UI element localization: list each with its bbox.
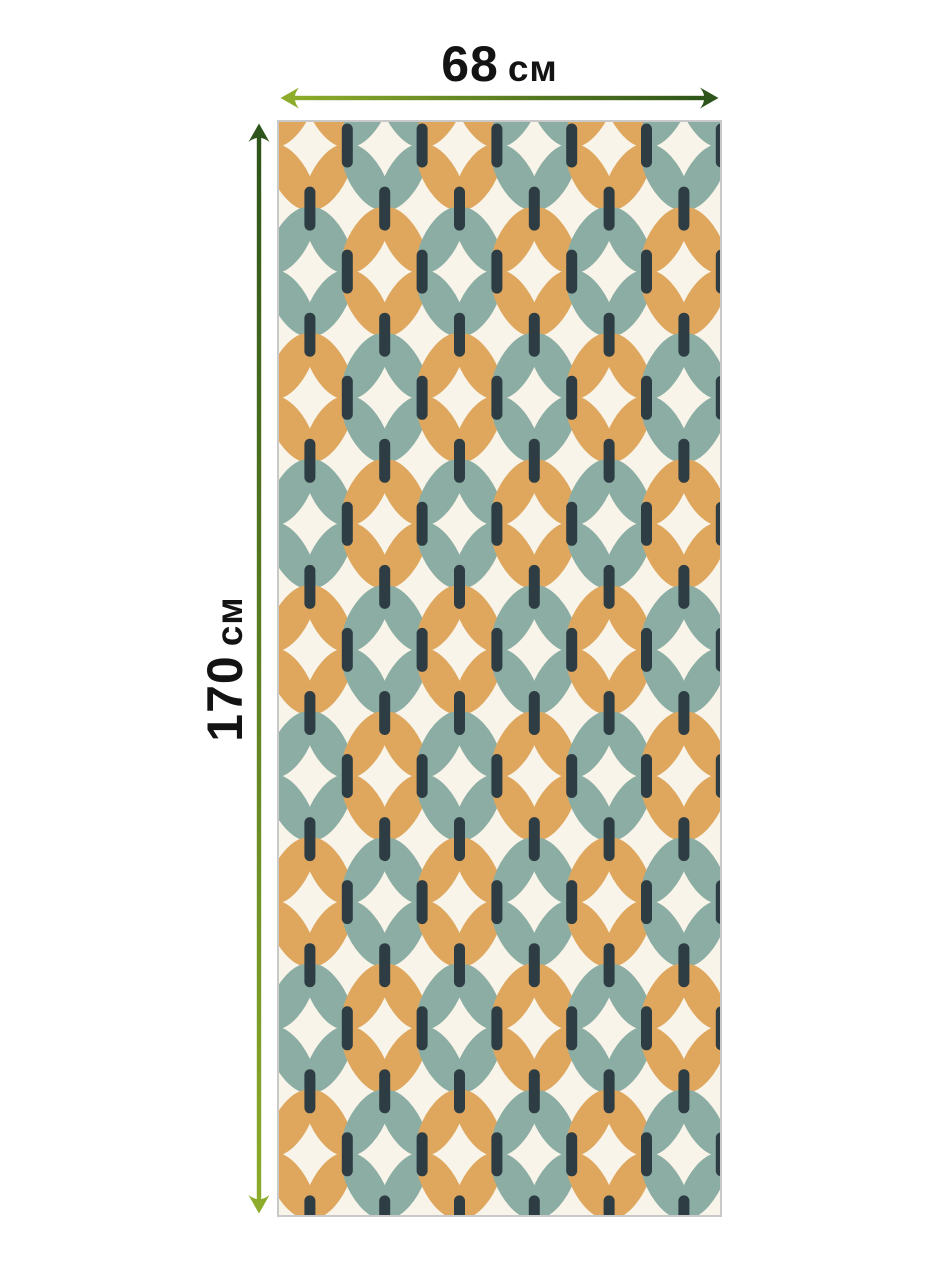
chain-link-capsule — [454, 313, 465, 357]
chain-link-capsule — [604, 1195, 615, 1215]
chain-link-capsule — [454, 439, 465, 483]
chain-link-capsule — [304, 565, 315, 609]
chain-link-capsule — [417, 880, 428, 924]
chain-link-capsule — [678, 1069, 689, 1113]
chain-link-capsule — [379, 439, 390, 483]
chain-link-capsule — [678, 313, 689, 357]
chain-link-capsule — [417, 1006, 428, 1050]
width-arrow-shaft — [291, 96, 708, 100]
height-unit: см — [209, 596, 250, 646]
chain-link-capsule — [641, 250, 652, 294]
chain-link-capsule — [417, 1132, 428, 1176]
chain-link-capsule — [379, 313, 390, 357]
chain-link-capsule — [678, 691, 689, 735]
chain-link-capsule — [454, 1195, 465, 1215]
chain-link-capsule — [454, 187, 465, 231]
chain-link-capsule — [342, 250, 353, 294]
chain-link-capsule — [491, 1132, 502, 1176]
chain-link-capsule — [529, 1069, 540, 1113]
chain-link-capsule — [491, 124, 502, 168]
chain-link-capsule — [342, 1006, 353, 1050]
chain-link-capsule — [604, 817, 615, 861]
chain-link-capsule — [566, 376, 577, 420]
chain-link-capsule — [491, 628, 502, 672]
chain-link-capsule — [342, 124, 353, 168]
chain-link-capsule — [342, 502, 353, 546]
chain-link-capsule — [304, 691, 315, 735]
chain-link-capsule — [641, 754, 652, 798]
chain-link-capsule — [342, 1132, 353, 1176]
chain-link-capsule — [716, 124, 720, 168]
chain-link-capsule — [641, 628, 652, 672]
chain-link-capsule — [566, 250, 577, 294]
chain-link-capsule — [604, 1069, 615, 1113]
width-unit: см — [508, 48, 558, 89]
chain-link-capsule — [566, 1132, 577, 1176]
chain-link-capsule — [491, 1006, 502, 1050]
chain-link-capsule — [304, 313, 315, 357]
chain-link-capsule — [304, 1069, 315, 1113]
chain-link-capsule — [604, 943, 615, 987]
chain-link-capsule — [566, 1006, 577, 1050]
chain-link-capsule — [342, 880, 353, 924]
chain-link-capsule — [529, 187, 540, 231]
chain-link-capsule — [379, 943, 390, 987]
chain-link-capsule — [417, 124, 428, 168]
chain-link-capsule — [716, 250, 720, 294]
chain-link-capsule — [342, 376, 353, 420]
chain-link-capsule — [678, 565, 689, 609]
chain-link-capsule — [604, 187, 615, 231]
chain-link-capsule — [304, 187, 315, 231]
chain-link-capsule — [566, 754, 577, 798]
chain-link-capsule — [491, 880, 502, 924]
chain-link-capsule — [529, 817, 540, 861]
chain-link-capsule — [491, 250, 502, 294]
chain-link-capsule — [454, 1069, 465, 1113]
chain-link-capsule — [379, 187, 390, 231]
chain-link-capsule — [566, 502, 577, 546]
chain-link-capsule — [641, 880, 652, 924]
chain-link-capsule — [529, 691, 540, 735]
chain-link-capsule — [678, 817, 689, 861]
chain-link-capsule — [716, 502, 720, 546]
chain-link-capsule — [491, 376, 502, 420]
height-arrow — [245, 120, 273, 1217]
chain-link-capsule — [379, 817, 390, 861]
chain-link-capsule — [454, 565, 465, 609]
chain-link-capsule — [641, 1132, 652, 1176]
chain-link-capsule — [641, 376, 652, 420]
chain-link-capsule — [304, 439, 315, 483]
chain-link-capsule — [417, 754, 428, 798]
chain-link-capsule — [529, 1195, 540, 1215]
chain-link-capsule — [678, 1195, 689, 1215]
chain-link-capsule — [529, 313, 540, 357]
chain-link-capsule — [566, 124, 577, 168]
height-arrow-shaft — [257, 134, 261, 1203]
chain-link-capsule — [342, 628, 353, 672]
chain-link-capsule — [342, 754, 353, 798]
pattern-svg — [279, 122, 720, 1215]
width-arrow — [277, 84, 722, 112]
chain-link-capsule — [641, 502, 652, 546]
chain-link-capsule — [417, 502, 428, 546]
blind-panel — [277, 120, 722, 1217]
chain-link-capsule — [529, 565, 540, 609]
chain-link-capsule — [491, 502, 502, 546]
chain-link-capsule — [417, 376, 428, 420]
chain-link-capsule — [529, 943, 540, 987]
chain-link-capsule — [604, 313, 615, 357]
chain-link-capsule — [604, 439, 615, 483]
chain-link-capsule — [641, 1006, 652, 1050]
product-mockup: 68см 170см — [0, 0, 950, 1266]
chain-link-capsule — [566, 628, 577, 672]
chain-link-capsule — [491, 754, 502, 798]
chain-link-capsule — [304, 1195, 315, 1215]
chain-link-capsule — [716, 1006, 720, 1050]
chain-link-capsule — [678, 439, 689, 483]
chain-link-capsule — [716, 754, 720, 798]
chain-link-capsule — [641, 124, 652, 168]
chain-link-capsule — [417, 250, 428, 294]
chain-link-capsule — [417, 628, 428, 672]
chain-link-capsule — [716, 1132, 720, 1176]
chain-link-capsule — [379, 1195, 390, 1215]
chain-link-capsule — [454, 817, 465, 861]
chain-link-capsule — [454, 691, 465, 735]
chain-link-capsule — [566, 880, 577, 924]
chain-link-capsule — [529, 439, 540, 483]
chain-link-capsule — [716, 628, 720, 672]
chain-link-capsule — [304, 943, 315, 987]
chain-link-capsule — [716, 376, 720, 420]
chain-link-capsule — [678, 943, 689, 987]
chain-link-capsule — [716, 880, 720, 924]
chain-link-capsule — [454, 943, 465, 987]
chain-link-capsule — [304, 817, 315, 861]
chain-link-capsule — [379, 1069, 390, 1113]
chain-link-capsule — [379, 691, 390, 735]
chain-link-capsule — [379, 565, 390, 609]
chain-link-capsule — [604, 691, 615, 735]
chain-link-capsule — [604, 565, 615, 609]
chain-link-capsule — [678, 187, 689, 231]
